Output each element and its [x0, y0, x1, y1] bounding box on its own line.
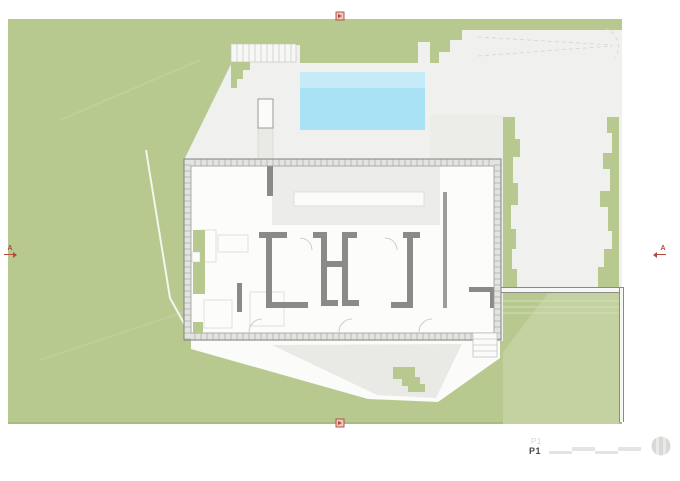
section-arrow-line	[4, 254, 13, 255]
section-marker-a-left-label: A	[2, 245, 18, 252]
scale-bar-segment	[595, 451, 618, 454]
section-marker-bottom	[336, 419, 344, 427]
site-plan-drawing	[0, 0, 680, 481]
compass-symbol	[652, 435, 671, 457]
scale-bar-segment	[549, 451, 572, 454]
section-arrow-left-icon	[653, 252, 657, 258]
section-arrow-right-icon	[13, 252, 17, 258]
scale-bar	[549, 444, 643, 456]
floor-plan-sheet: A A P1 P1	[0, 0, 680, 481]
pool-side-structure	[258, 99, 273, 160]
sheet-label-ghost: P1	[531, 437, 542, 446]
section-marker-a-right-label: A	[655, 245, 671, 252]
scale-bar-segment	[618, 447, 641, 451]
kitchen-counter	[294, 192, 424, 206]
lower-garden	[500, 288, 624, 425]
swimming-pool	[300, 72, 425, 130]
section-marker-top	[336, 12, 344, 20]
sheet-label: P1	[529, 446, 541, 456]
section-marker-a-left: A	[2, 245, 18, 259]
section-marker-a-right: A	[655, 245, 671, 259]
scale-bar-segment	[572, 447, 595, 451]
exterior-steps	[473, 333, 497, 357]
building	[184, 159, 501, 357]
section-arrow-line	[657, 254, 666, 255]
